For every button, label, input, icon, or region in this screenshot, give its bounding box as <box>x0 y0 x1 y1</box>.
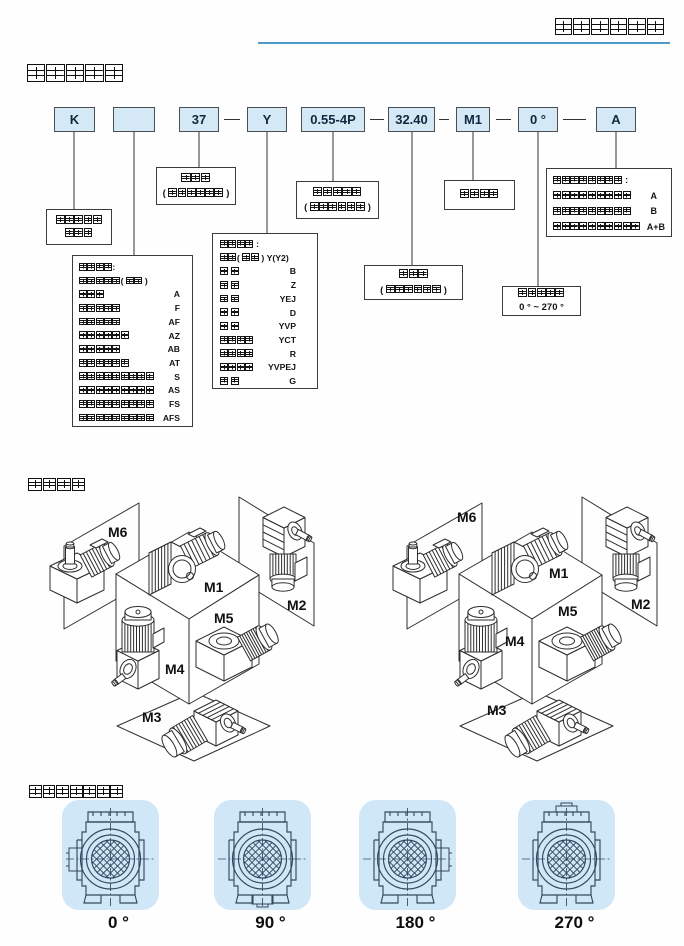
svg-text:M2: M2 <box>287 597 307 613</box>
svg-text:M6: M6 <box>108 524 128 540</box>
svg-text:M6: M6 <box>457 509 477 525</box>
svg-text:M5: M5 <box>214 610 234 626</box>
svg-text:M4: M4 <box>165 661 185 677</box>
svg-text:M3: M3 <box>487 702 507 718</box>
svg-text:M1: M1 <box>204 579 224 595</box>
svg-text:M1: M1 <box>549 565 569 581</box>
svg-text:M2: M2 <box>631 596 651 612</box>
svg-text:M5: M5 <box>558 603 578 619</box>
svg-text:M4: M4 <box>505 633 525 649</box>
svg-text:M3: M3 <box>142 709 162 725</box>
